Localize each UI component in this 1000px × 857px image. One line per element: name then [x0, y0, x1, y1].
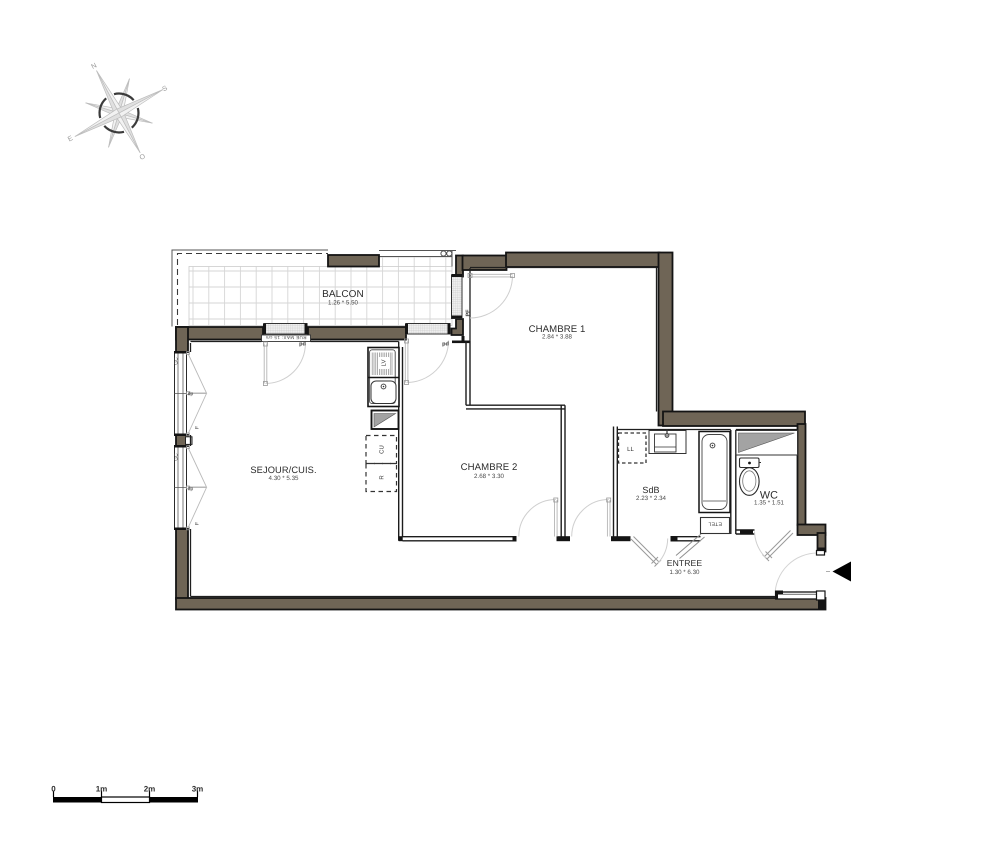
svg-text:ENTREE: ENTREE	[667, 558, 703, 568]
svg-text:SdB: SdB	[642, 485, 659, 495]
svg-text:1m: 1m	[96, 785, 108, 794]
svg-text:GC: GC	[174, 453, 180, 461]
svg-text:RUE MAX: 15 cm: RUE MAX: 15 cm	[266, 335, 307, 340]
svg-text:1.35 * 1.51: 1.35 * 1.51	[754, 500, 784, 507]
svg-text:1.26 * 5.50: 1.26 * 5.50	[328, 300, 358, 307]
svg-text:2.84 * 3.88: 2.84 * 3.88	[542, 333, 572, 340]
svg-text:dp: dp	[188, 486, 194, 492]
svg-text:dp: dp	[188, 391, 194, 397]
svg-text:F: F	[195, 426, 201, 429]
svg-text:ETEL: ETEL	[708, 520, 722, 526]
svg-text:R: R	[379, 475, 386, 480]
svg-text:GC: GC	[174, 357, 180, 365]
svg-text:BALCON: BALCON	[322, 289, 364, 300]
svg-text:pd: pd	[299, 340, 306, 346]
svg-text:LL: LL	[627, 446, 634, 453]
svg-text:CHAMBRE 2: CHAMBRE 2	[461, 462, 518, 473]
svg-text:2.68 * 3.30: 2.68 * 3.30	[474, 473, 504, 480]
svg-text:CU: CU	[379, 445, 386, 454]
svg-text:0: 0	[51, 785, 56, 794]
svg-text:PF: PF	[466, 309, 472, 317]
svg-text:pd: pd	[442, 340, 449, 346]
svg-text:F: F	[195, 522, 201, 525]
svg-text:1.30 * 6.30: 1.30 * 6.30	[670, 569, 700, 576]
svg-text:4.30 * 5.35: 4.30 * 5.35	[269, 475, 299, 482]
svg-text:LV: LV	[381, 360, 388, 367]
svg-text:SEJOUR/CUIS.: SEJOUR/CUIS.	[250, 465, 316, 475]
svg-text:3m: 3m	[192, 785, 204, 794]
svg-text:2.23 * 2.34: 2.23 * 2.34	[636, 495, 666, 502]
svg-text:2m: 2m	[144, 785, 156, 794]
